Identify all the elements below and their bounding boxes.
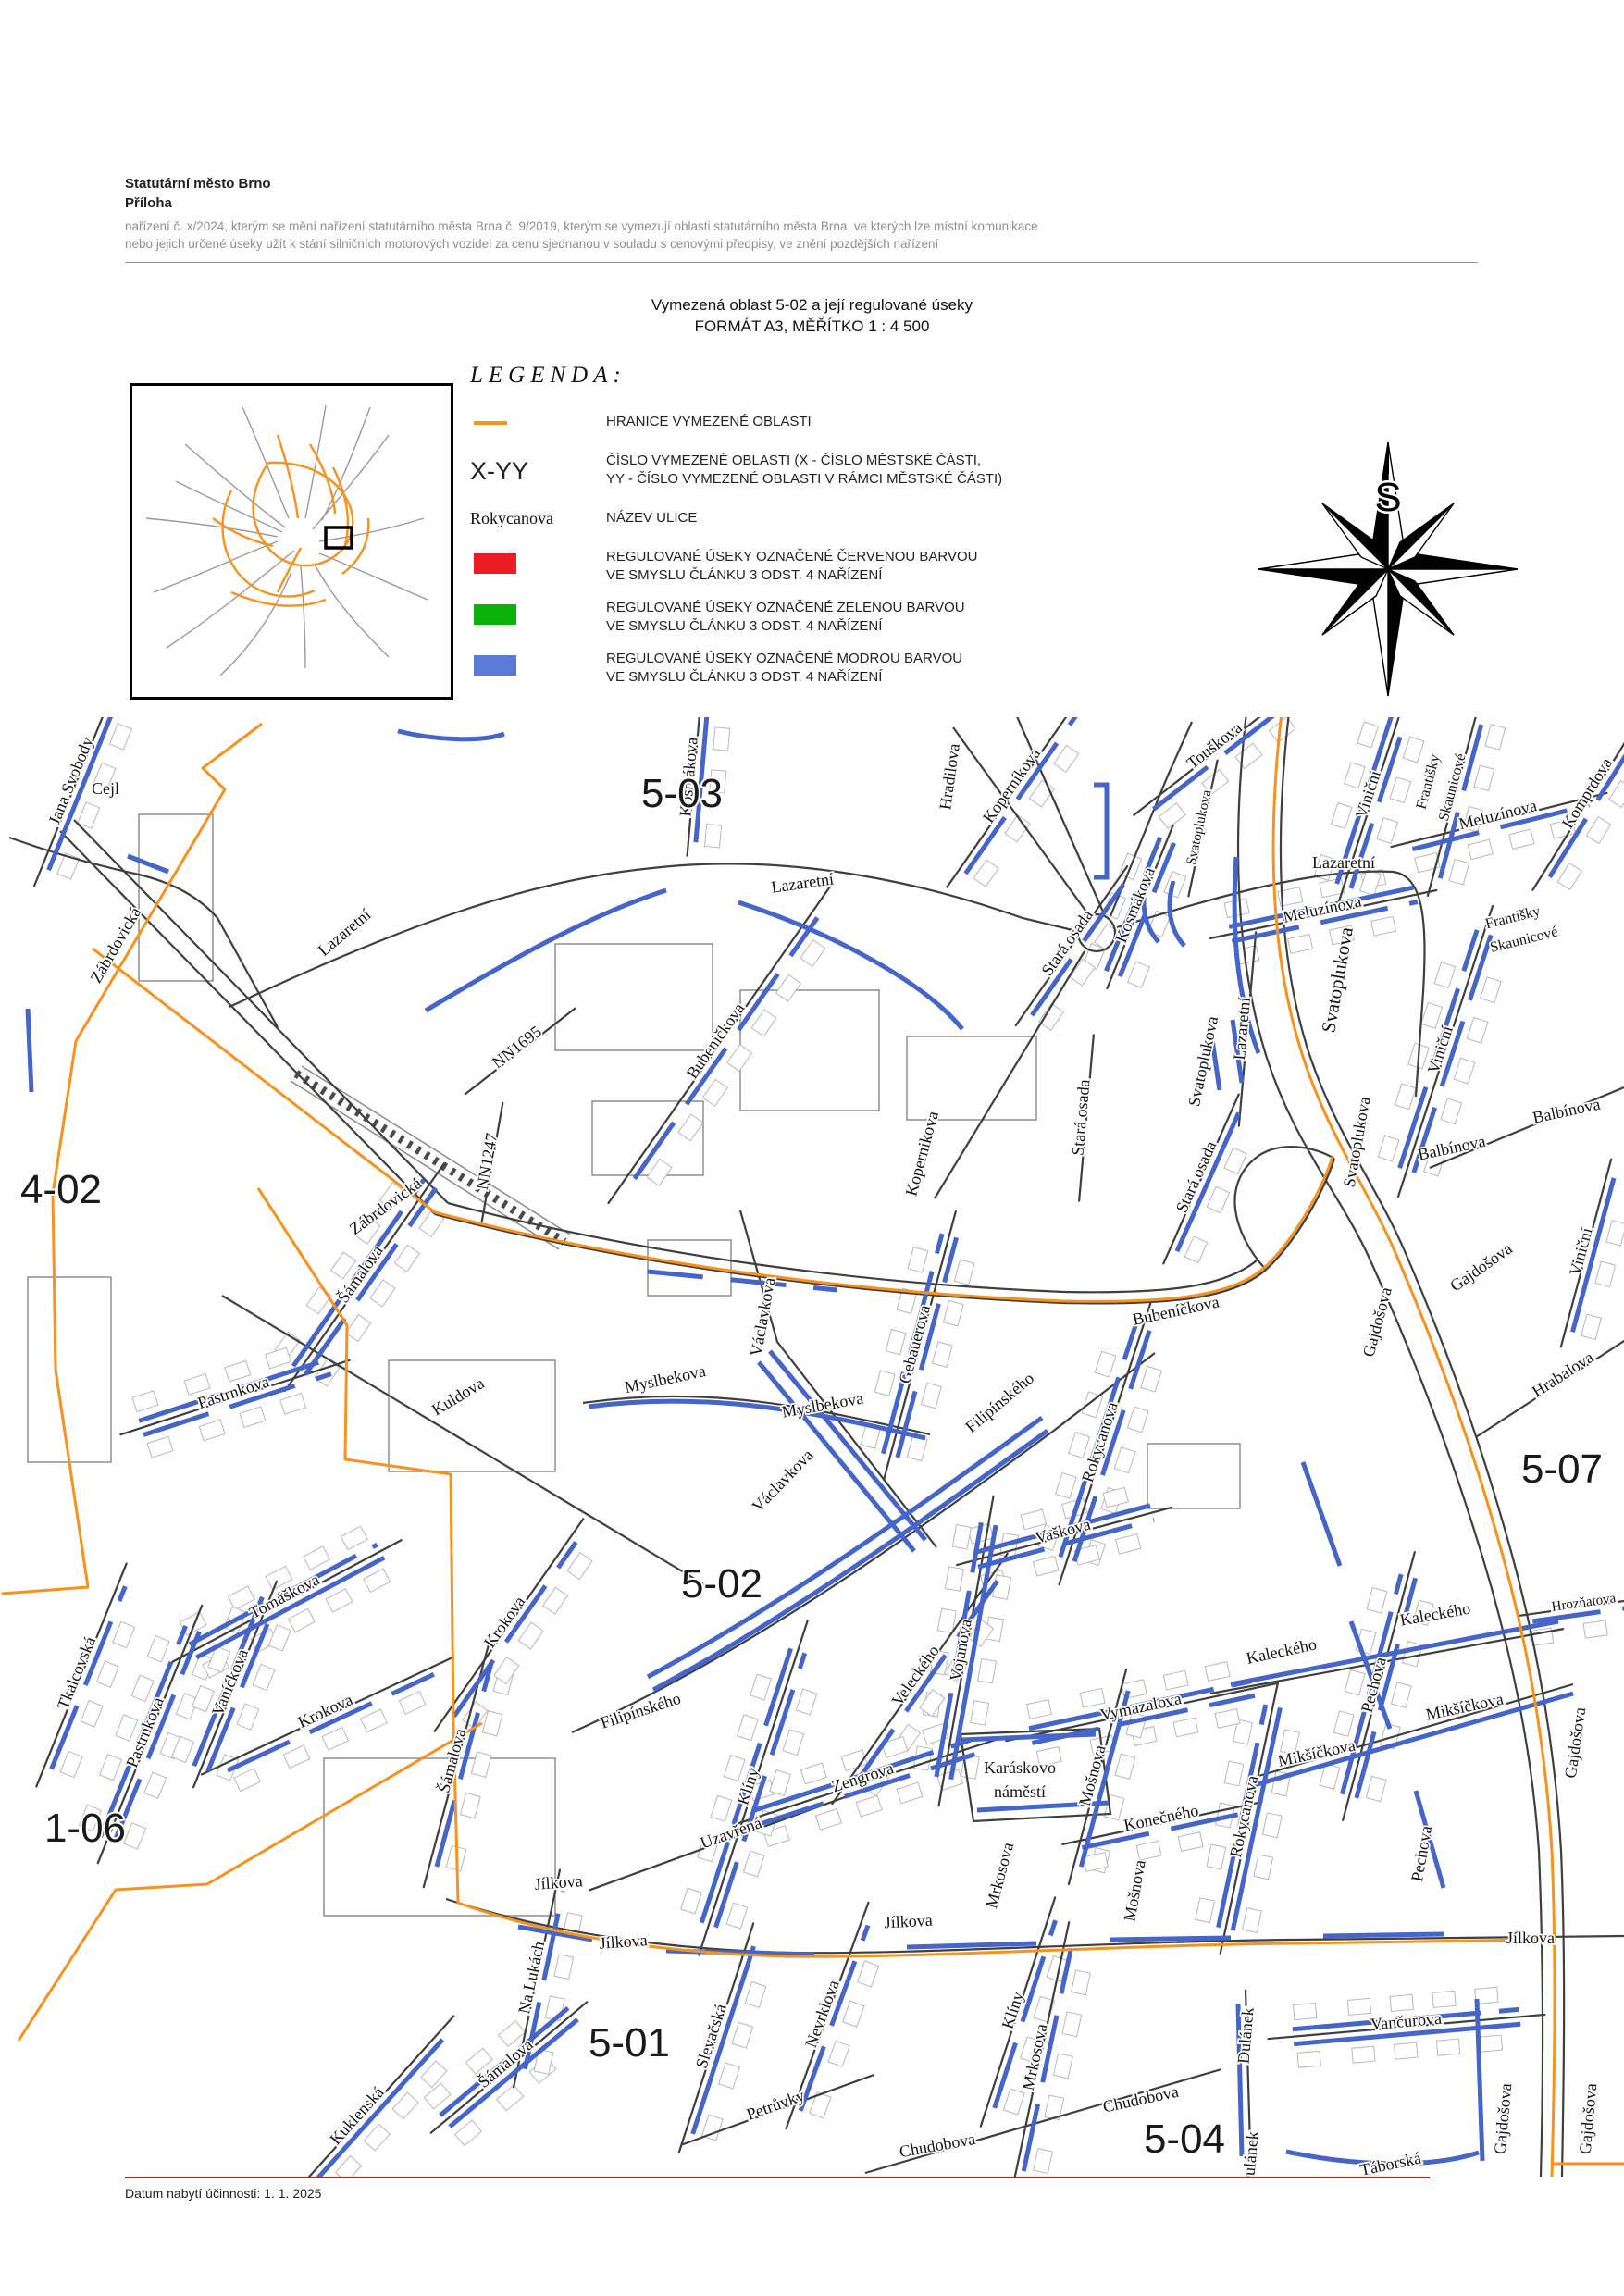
legend-street-name-symbol: Rokycanova: [470, 509, 553, 528]
legend-green-label-1: REGULOVANÉ ÚSEKY OZNAČENÉ ZELENOU BARVOU: [606, 599, 965, 617]
building-footprint: [1403, 737, 1424, 763]
building-footprint: [109, 724, 131, 750]
building-footprint: [237, 1704, 259, 1730]
building-footprint: [1128, 962, 1150, 987]
building-footprint: [1136, 1841, 1161, 1860]
building-footprint: [1474, 765, 1494, 790]
building-footprint: [776, 974, 801, 1001]
street-label: Kopernikova: [901, 1109, 942, 1198]
regulated-segment-blue: [228, 1674, 434, 1770]
building-footprint: [1207, 1844, 1226, 1869]
street-label: Dulánek: [1233, 2006, 1257, 2064]
regulated-segment-blue: [1154, 701, 1292, 809]
street-label: Františky: [1414, 752, 1444, 811]
street-label: Táborská: [1358, 2148, 1423, 2178]
legend-area-code-label-2: YY - ČÍSLO VYMEZENÉ OBLASTI V RÁMCI MĚST…: [606, 470, 1002, 489]
legend-area-code-symbol: X-YY: [470, 457, 528, 486]
building-footprint: [800, 1763, 826, 1784]
street-label: Myslbekova: [623, 1361, 707, 1396]
building-footprint: [1390, 1994, 1413, 2011]
building-footprint: [1054, 745, 1079, 772]
building-footprint: [280, 1394, 306, 1415]
building-footprint: [1434, 962, 1456, 988]
street-label: Uzavřená: [698, 1813, 764, 1852]
compass-rose-icon: S: [1258, 442, 1518, 696]
legend-blue-label-2: VE SMYSLU ČLÁNKU 3 ODST. 4 NAŘÍZENÍ: [606, 668, 882, 687]
building-footprint: [796, 1689, 817, 1715]
legend-boundary-line-swatch: [474, 421, 507, 425]
building-footprint: [78, 802, 100, 828]
building-footprint: [973, 860, 998, 887]
inset-map-frame: [130, 383, 453, 700]
street-label: Hrozňatova: [1551, 1591, 1618, 1615]
street-label: Gajdošova: [1359, 1285, 1395, 1359]
building-footprint: [306, 1287, 331, 1314]
header-divider: [125, 262, 1478, 263]
building-footprint: [482, 1711, 502, 1736]
footer-divider: [125, 2177, 1430, 2178]
building-footprint: [828, 2041, 849, 2066]
street-label: Gajdošova: [1491, 2082, 1516, 2154]
building-footprint: [240, 1407, 266, 1428]
building-footprint: [543, 1587, 568, 1614]
building-footprint: [268, 1625, 291, 1651]
building-footprint: [1288, 935, 1313, 954]
building-footprint: [253, 1664, 275, 1690]
building-footprint: [1390, 777, 1411, 803]
header-law-line-2: nebo jejich určené úseky užít k stání si…: [125, 237, 1504, 251]
building-footprint: [1357, 722, 1379, 748]
building-footprint: [857, 1961, 878, 1987]
building-footprint: [1114, 1447, 1135, 1473]
building-footprint: [1205, 1662, 1230, 1682]
regulated-segment-blue: [965, 712, 1078, 874]
legend-area-code-label-1: ČÍSLO VYMEZENÉ OBLASTI (X - ČÍSLO MĚSTSK…: [606, 452, 981, 470]
street-label: NN1695: [489, 1022, 545, 1072]
building-footprint: [743, 1851, 764, 1877]
building-footprint: [370, 1280, 395, 1307]
building-footprint: [234, 1769, 261, 1792]
building-footprint: [1454, 1058, 1475, 1084]
building-footprint: [856, 1795, 882, 1817]
building-footprint: [1164, 872, 1186, 898]
building-footprint: [1027, 1700, 1052, 1719]
building-footprint: [399, 1692, 426, 1715]
building-footprint: [1235, 743, 1262, 768]
building-footprint: [1293, 2003, 1316, 2019]
effective-date: Datum nabytí účinnosti: 1. 1. 2025: [125, 2186, 321, 2201]
legend-red-label-2: VE SMYSLU ČLÁNKU 3 ODST. 4 NAŘÍZENÍ: [606, 566, 882, 585]
building-footprint: [1333, 1711, 1354, 1736]
building-footprint: [471, 1752, 491, 1777]
building-footprint: [304, 1546, 330, 1570]
area-code-label: 5-04: [1144, 2116, 1225, 2162]
street-label: Svatoplukova: [1317, 925, 1357, 1035]
building-footprint: [1127, 1407, 1148, 1433]
building-footprint: [897, 1782, 923, 1804]
area-code-label: 5-02: [681, 1561, 762, 1607]
street-label: Pechova: [1407, 1824, 1435, 1883]
building-footprint: [1115, 1534, 1140, 1555]
street-label: Karáskovo: [984, 1758, 1056, 1777]
building-footprint: [1366, 1776, 1386, 1801]
street-label: Filipínského: [961, 1369, 1037, 1436]
area-code-label: 1-06: [44, 1806, 126, 1851]
building-footprint: [1402, 1642, 1422, 1667]
building-footprint: [1479, 2035, 1502, 2052]
building-footprint: [702, 1079, 727, 1106]
header-organization: Statutární město Brno: [125, 176, 271, 192]
building-footprint: [783, 1730, 804, 1756]
building-footprint: [727, 1045, 752, 1072]
street-label: Klíny: [998, 1990, 1027, 2031]
legend-street-name-label: NÁZEV ULICE: [606, 509, 697, 527]
building-footprint: [1269, 717, 1295, 742]
building-footprint: [1163, 1670, 1188, 1690]
legend-boundary-label: HRANICE VYMEZENÉ OBLASTI: [606, 413, 812, 431]
building-footprint: [132, 1391, 158, 1412]
building-footprint: [424, 2083, 451, 2109]
building-footprint: [1509, 829, 1534, 849]
building-footprint: [816, 1809, 842, 1831]
building-footprint: [1395, 2042, 1418, 2059]
building-footprint: [518, 1622, 543, 1649]
street-label: Gajdošova: [1576, 2082, 1601, 2154]
building-footprint: [843, 2001, 864, 2027]
building-footprint: [1609, 781, 1624, 808]
compass-north-letter: S: [1374, 475, 1401, 520]
building-footprint: [289, 1608, 316, 1632]
building-footprint: [96, 1661, 118, 1687]
building-footprint: [1141, 1366, 1162, 1392]
building-footprint: [1347, 1998, 1370, 2015]
street-label: Stará osada: [1068, 1079, 1093, 1157]
street-label: Meluzínova: [1457, 796, 1538, 833]
regulated-segment-blue: [1032, 885, 1123, 1015]
building-footprint: [1095, 1351, 1116, 1377]
building-footprint: [1583, 1620, 1607, 1638]
building-footprint: [567, 1553, 592, 1580]
street-label: Kuldova: [428, 1373, 487, 1419]
building-footprint: [922, 1383, 942, 1408]
building-footprint: [1371, 916, 1396, 936]
building-footprint: [199, 1420, 225, 1441]
building-footprint: [60, 1751, 82, 1777]
building-footprint: [908, 1247, 928, 1272]
street-label: Balbínova: [1531, 1095, 1602, 1127]
building-footprint: [1485, 725, 1506, 750]
building-footprint: [1184, 1236, 1207, 1262]
building-footprint: [326, 1589, 353, 1612]
building-footprint: [954, 1260, 974, 1285]
building-footprint: [1367, 1588, 1387, 1613]
building-footprint: [1034, 2149, 1053, 2174]
building-footprint: [395, 1245, 420, 1272]
legend-blue-label-1: REGULOVANÉ ÚSEKY OZNAČENÉ MODROU BARVOU: [606, 650, 962, 668]
building-footprint: [874, 1371, 895, 1396]
header-law-line-1: nařízení č. x/2024, kterým se mění naříz…: [125, 219, 1504, 233]
building-footprint: [1392, 1682, 1412, 1707]
building-footprint: [147, 1636, 169, 1662]
building-footprint: [800, 940, 825, 967]
building-footprint: [1468, 839, 1493, 859]
building-footprint: [647, 1159, 672, 1185]
legend-green-label-2: VE SMYSLU ČLÁNKU 3 ODST. 4 NAŘÍZENÍ: [606, 617, 882, 636]
building-footprint: [952, 1525, 971, 1549]
street-label: Svatoplukova: [1184, 788, 1215, 866]
building-footprint: [751, 1010, 776, 1036]
building-footprint: [1377, 818, 1398, 844]
page-title: Vymezená oblast 5-02 a její regulované ú…: [0, 296, 1624, 315]
building-footprint: [945, 1567, 963, 1591]
building-footprint: [364, 1569, 391, 1592]
building-footprint: [678, 1114, 703, 1141]
building-footprint: [81, 1701, 103, 1727]
building-footprint: [1215, 1709, 1240, 1729]
building-footprint: [711, 1795, 732, 1821]
legend-heading: LEGENDA:: [470, 363, 626, 389]
street-label: Gajdošova: [1561, 1706, 1590, 1780]
building-footprint: [681, 1888, 702, 1914]
regulated-segment-blue: [454, 1543, 576, 1717]
street-label: Mošnova: [1120, 1858, 1148, 1922]
building-footprint: [1254, 1855, 1273, 1880]
street-label: Gajdošova: [1446, 1239, 1516, 1296]
building-footprint: [1595, 1261, 1616, 1286]
street-label: Mrkosova: [982, 1841, 1017, 1911]
building-footprint: [346, 1315, 371, 1342]
street-label: Svatoplukova: [1340, 1095, 1374, 1188]
building-footprint: [1062, 2012, 1082, 2037]
building-footprint: [943, 1301, 963, 1326]
building-footprint: [144, 1772, 167, 1798]
building-footprint: [455, 2120, 482, 2146]
street-label: Hrabalova: [1529, 1347, 1597, 1401]
area-code-label: 5-03: [641, 771, 723, 816]
building-footprint: [732, 2022, 753, 2048]
building-footprint: [1352, 2046, 1375, 2063]
building-footprint: [713, 727, 730, 751]
legend-red-label-1: REGULOVANÉ ÚSEKY OZNAČENÉ ČERVENOU BARVO…: [606, 548, 978, 566]
building-footprint: [770, 1770, 791, 1796]
building-footprint: [726, 1903, 748, 1929]
building-footprint: [124, 1823, 146, 1849]
building-footprint: [1072, 1970, 1091, 1995]
building-footprint: [361, 1709, 388, 1732]
building-footprint: [1207, 1186, 1229, 1212]
street-label: Jílkova: [1506, 1929, 1555, 1947]
building-footprint: [266, 1347, 291, 1369]
area-code-label: 5-01: [589, 2020, 670, 2066]
building-footprint: [1378, 1136, 1399, 1161]
building-footprint: [933, 1342, 953, 1367]
street-label: NN1247: [473, 1132, 501, 1192]
building-footprint: [1481, 977, 1502, 1003]
street-label: Konečného: [1122, 1801, 1200, 1835]
building-footprint: [1581, 1314, 1602, 1339]
building-footprint: [745, 1982, 766, 2008]
street-label: Lazaretní: [1312, 853, 1375, 872]
building-footprint: [1262, 1813, 1282, 1838]
building-footprint: [364, 2124, 390, 2151]
regulated-segment-blue: [196, 1558, 384, 1657]
header-attachment: Příloha: [125, 195, 172, 211]
building-footprint: [1436, 2039, 1459, 2055]
legend-red-swatch: [474, 553, 516, 574]
building-footprint: [100, 1755, 122, 1781]
building-footprint: [738, 1715, 759, 1741]
building-footprint: [392, 2092, 418, 2119]
street-label: Chudobova: [1101, 2082, 1180, 2116]
street-label: Chudobova: [898, 2129, 976, 2161]
area-code-label: 5-07: [1521, 1446, 1603, 1492]
street-label: Jílkova: [534, 1871, 583, 1893]
street-label: náměstí: [994, 1782, 1046, 1801]
building-footprint: [1557, 863, 1581, 890]
legend-green-swatch: [474, 604, 516, 625]
building-footprint: [971, 1701, 989, 1725]
building-footprint: [1173, 1718, 1198, 1737]
street-label: Václavkova: [749, 1446, 817, 1516]
street-label: Dulánek: [1238, 2130, 1261, 2188]
street-label: Lazaretní: [1230, 997, 1254, 1061]
street-label: Petrůvky: [744, 2086, 807, 2124]
street-label: Jílkova: [884, 1911, 933, 1932]
building-footprint: [1297, 2051, 1320, 2067]
page-subtitle: FORMÁT A3, MĚŘÍTKO 1 : 4 500: [0, 317, 1624, 336]
building-footprint: [1056, 1473, 1077, 1499]
building-footprint: [1003, 2089, 1024, 2115]
street-label: Hradilova: [936, 742, 963, 811]
map-canvas: S: [0, 0, 1624, 2296]
building-footprint: [1196, 1898, 1215, 1923]
street-label: Václavkova: [747, 1276, 779, 1358]
building-footprint: [1178, 1832, 1203, 1852]
legend-blue-swatch: [474, 655, 516, 676]
building-footprint: [1034, 1556, 1059, 1576]
building-footprint: [322, 1728, 349, 1751]
area-code-label: 4-02: [20, 1167, 102, 1212]
building-footprint: [1331, 803, 1352, 829]
street-label: Koperníkova: [979, 744, 1044, 825]
street-label: Cejl: [92, 779, 119, 798]
building-footprint: [460, 1793, 480, 1818]
street-label: Lazaretní: [315, 905, 375, 960]
street-label: Jílkova: [599, 1930, 648, 1953]
building-footprint: [705, 825, 722, 848]
regulated-segment-blue: [635, 918, 818, 1179]
regulated-segment-blue: [291, 2040, 443, 2209]
building-footprint: [1606, 1221, 1624, 1246]
building-footprint: [283, 1745, 310, 1769]
street-label: Zábrdovická: [346, 1173, 425, 1238]
building-footprint: [1467, 1018, 1488, 1044]
street-label: Kaleckého: [1245, 1634, 1318, 1668]
street-label: Filipínského: [598, 1689, 683, 1732]
building-footprint: [1432, 1991, 1456, 2007]
building-footprint: [497, 2085, 524, 2111]
building-footprint: [719, 2063, 740, 2089]
building-footprint: [1586, 817, 1610, 844]
building-footprint: [113, 1621, 135, 1647]
building-footprint: [1449, 860, 1469, 885]
building-footprint: [147, 1436, 173, 1458]
building-footprint: [1115, 1754, 1135, 1779]
building-footprint: [1395, 1084, 1416, 1110]
building-footprint: [421, 2061, 447, 2088]
building-footprint: [1243, 1908, 1262, 1933]
building-footprint: [1441, 1098, 1462, 1124]
building-footprint: [978, 1658, 997, 1682]
building-footprint: [341, 1526, 367, 1549]
building-footprint: [554, 1955, 574, 1980]
building-footprint: [1053, 2054, 1072, 2079]
document-page: S: [0, 0, 1624, 2296]
building-footprint: [750, 1674, 772, 1700]
building-footprint: [1159, 803, 1185, 828]
